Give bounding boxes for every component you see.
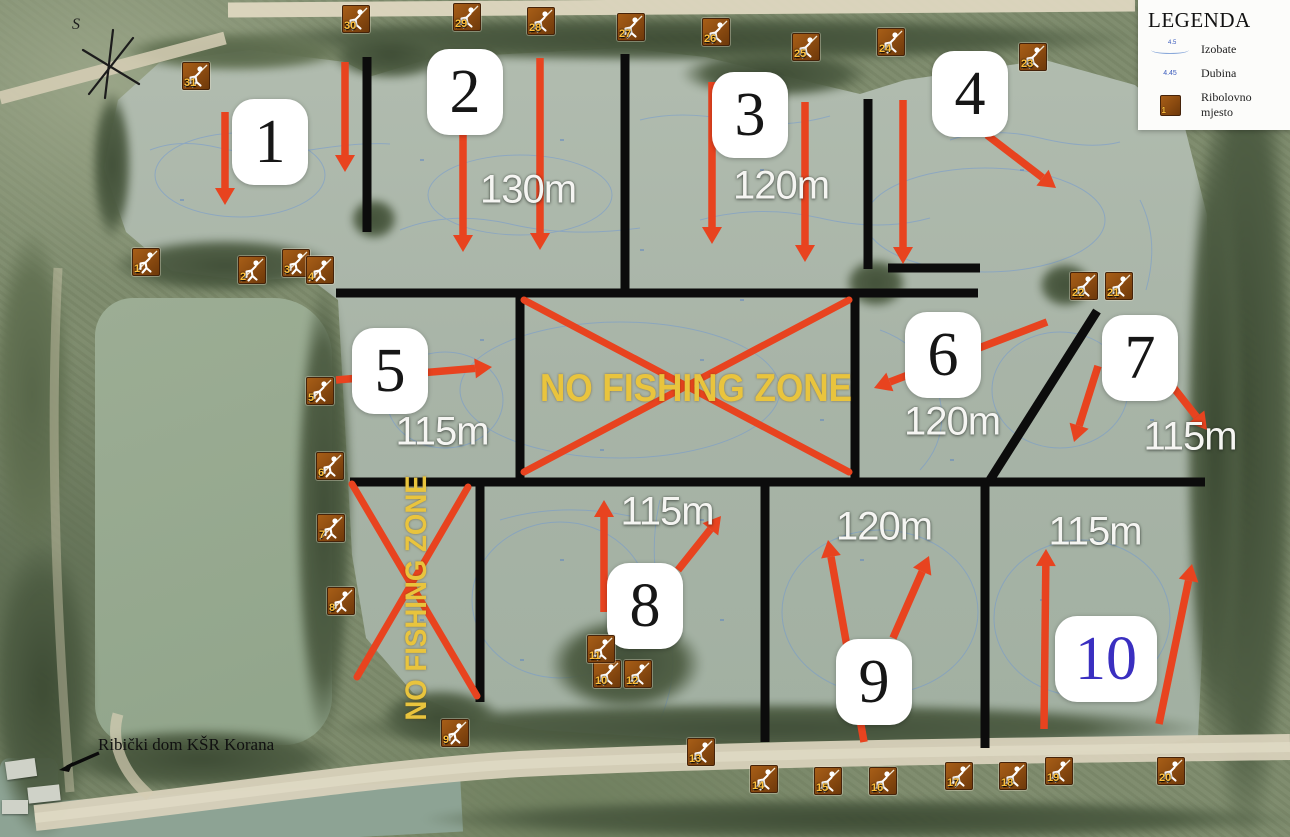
fishing-spot-number: 30 [344,20,356,33]
zone-number: 5 [375,340,406,402]
cast-direction-arrowhead [335,155,355,172]
fishing-spot-number: 7 [319,529,325,542]
fishing-spot-marker: 15 [814,767,842,795]
zone-number-badge: 7 [1102,315,1178,401]
fishing-spot-marker: 2 [238,256,266,284]
fishing-spot-marker: 5 [306,377,334,405]
fishing-spot-marker: 14 [750,765,778,793]
fishing-spot-marker: 18 [999,762,1027,790]
distance-label: 120m [904,400,1000,445]
fishing-spot-number: 26 [704,33,716,46]
zone-number: 8 [630,575,661,637]
fishing-spot-marker: 25 [792,33,820,61]
fishing-spot-marker: 8 [327,587,355,615]
fishing-spot-marker: 1 [132,248,160,276]
legend-item-izobate: 4.5 Izobate [1148,42,1280,57]
cast-direction-arrowhead [453,235,473,252]
fishing-spot-marker: 20 [1157,757,1185,785]
zone-number: 7 [1125,327,1156,389]
zone-number-badge: 4 [932,51,1008,137]
no-fishing-zone-label: NO FISHING ZONE [540,367,852,411]
isobath-line-symbol: 4.5 [1148,46,1192,54]
fishing-spot-marker: 23 [1019,43,1047,71]
fishing-spot-number: 10 [595,675,607,688]
fishing-spot-number: 12 [626,675,638,688]
club-arrow-icon [55,748,105,776]
fishing-spot-marker: 29 [453,3,481,31]
fishing-spot-number: 17 [947,777,959,790]
fishing-spot-marker: 30 [342,5,370,33]
fishing-spot-number: 1 [134,263,140,276]
legend-panel: LEGENDA 4.5 Izobate 4.45 Dubina 1 Ribolo… [1138,0,1290,130]
distance-label: 120m [733,164,829,209]
fishing-spot-marker: 10 [593,660,621,688]
fishing-spot-number: 3 [284,264,290,277]
zone-number-badge: 6 [905,312,981,398]
fishing-spot-number: 31 [184,77,196,90]
club-house-label: Ribički dom KŠR Korana [98,735,274,755]
fishing-spot-marker: 28 [527,7,555,35]
cast-direction-arrow [678,529,710,570]
lake-map: NO FISHING ZONE NO FISHING ZONE 130m120m… [0,0,1290,837]
cast-direction-arrowhead [893,247,913,264]
fishing-spot-marker: 13 [687,738,715,766]
distance-label: 115m [620,490,713,535]
cast-direction-arrow [1159,581,1189,724]
cast-direction-arrowhead [215,188,235,205]
fishing-spot-marker: 31 [182,62,210,90]
fishing-spot-number: 28 [529,22,541,35]
fishing-spot-number: 16 [871,782,883,795]
fishing-spot-marker: 21 [1105,272,1133,300]
legend-item-ribolovno-mjesto: 1 Ribolovno mjesto [1148,90,1280,120]
cast-direction-arrow [1079,366,1098,426]
fishing-spot-number: 24 [879,43,891,56]
cast-direction-arrowhead [474,358,492,378]
legend-title: LEGENDA [1148,8,1280,33]
cast-direction-arrow [1044,566,1046,729]
cast-direction-arrowhead [1179,564,1199,583]
zone-number-badge: 2 [427,49,503,135]
fishing-spot-marker: 11 [587,635,615,663]
zone-number: 9 [859,651,890,713]
fishing-spot-number: 9 [443,734,449,747]
cast-direction-arrowhead [702,227,722,244]
fishing-spot-number: 14 [752,780,764,793]
fishing-spot-number: 13 [689,753,701,766]
fishing-spot-number: 6 [318,467,324,480]
fishing-spot-number: 20 [1159,772,1171,785]
legend-item-dubina: 4.45 Dubina [1148,66,1280,81]
zone-number: 3 [735,84,766,146]
fishing-spot-number: 5 [308,392,314,405]
fishing-spot-number: 11 [589,650,601,663]
cast-direction-arrowhead [594,500,614,517]
compass-icon [75,28,147,100]
fishing-spot-marker: 4 [306,256,334,284]
fishing-spot-number: 18 [1001,777,1013,790]
cast-direction-arrowhead [795,245,815,262]
zone-number: 1 [255,111,286,173]
fishing-spot-marker: 17 [945,762,973,790]
fishing-spot-number: 22 [1072,287,1084,300]
zone-number: 6 [928,324,959,386]
distance-label: 130m [480,168,576,213]
fishing-spot-number: 19 [1047,772,1059,785]
zone-number-badge: 3 [712,72,788,158]
fishing-spot-marker: 22 [1070,272,1098,300]
fishing-spot-marker: 24 [877,28,905,56]
fishing-spot-number: 4 [308,271,314,284]
fishing-spot-marker: 19 [1045,757,1073,785]
zone-number-badge: 10 [1055,616,1157,702]
zone-number-badge: 8 [607,563,683,649]
fishing-spot-marker: 16 [869,767,897,795]
fishing-spot-marker-symbol: 1 [1160,95,1181,116]
distance-label: 115m [1143,415,1236,460]
zone-number-badge: 9 [836,639,912,725]
depth-number-symbol: 4.45 [1148,70,1192,77]
fishing-spot-number: 23 [1021,58,1033,71]
fishing-spot-number: 8 [329,602,335,615]
distance-label: 115m [1048,510,1141,555]
cast-direction-arrowhead [530,233,550,250]
fishing-spot-marker: 12 [624,660,652,688]
zone-number: 10 [1075,628,1137,690]
zone-number-badge: 1 [232,99,308,185]
fishing-spot-number: 21 [1107,287,1119,300]
zone-number: 4 [955,63,986,125]
cast-direction-arrow [893,572,922,638]
fishing-spot-marker: 27 [617,13,645,41]
fishing-spot-number: 15 [816,782,828,795]
cast-direction-arrow [987,135,1043,178]
fishing-spot-number: 27 [619,28,631,41]
no-fishing-zone-label: NO FISHING ZONE [400,475,434,720]
fishing-spot-marker: 7 [317,514,345,542]
fishing-spot-marker: 9 [441,719,469,747]
zone-number-badge: 5 [352,328,428,414]
distance-label: 115m [395,410,488,455]
distance-label: 120m [836,505,932,550]
fishing-spot-number: 2 [240,271,246,284]
fishing-spot-number: 25 [794,48,806,61]
zone-number: 2 [450,61,481,123]
fishing-spot-marker: 6 [316,452,344,480]
fishing-spot-marker: 26 [702,18,730,46]
zone-boundaries-and-arrows [0,0,1290,837]
fishing-spot-number: 29 [455,18,467,31]
compass-north-label: S [72,16,80,34]
